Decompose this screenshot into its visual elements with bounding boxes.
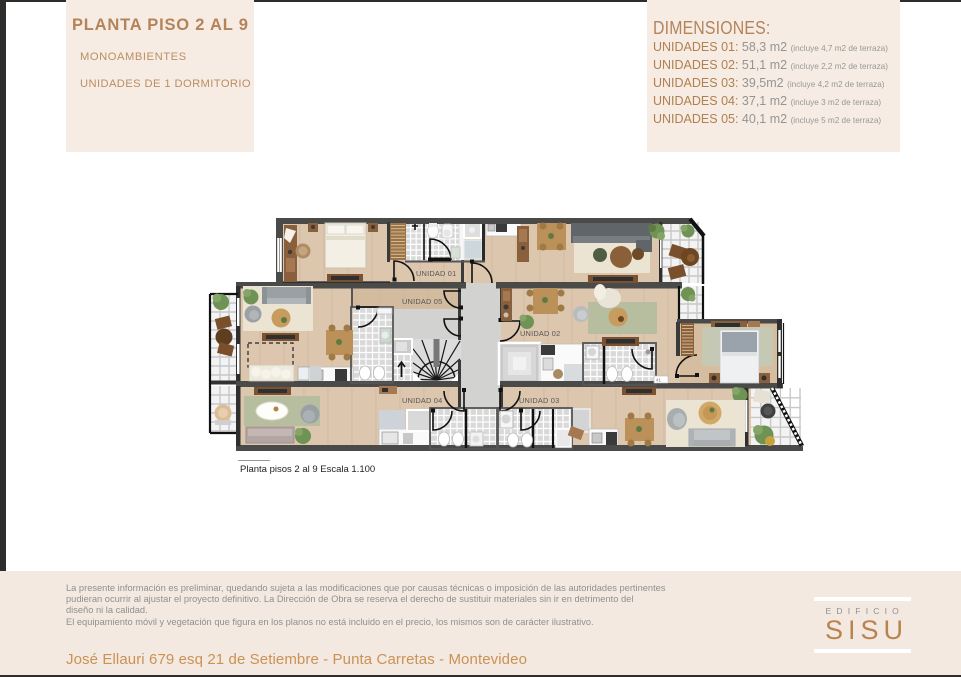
svg-text:UNIDAD 03: UNIDAD 03 <box>519 396 559 405</box>
svg-text:41: 41 <box>656 378 662 383</box>
svg-text:UNIDAD 05: UNIDAD 05 <box>402 297 442 306</box>
svg-text:UNIDAD 01: UNIDAD 01 <box>416 269 456 278</box>
svg-text:UNIDAD 02: UNIDAD 02 <box>520 329 560 338</box>
svg-text:UNIDAD 04: UNIDAD 04 <box>402 396 442 405</box>
